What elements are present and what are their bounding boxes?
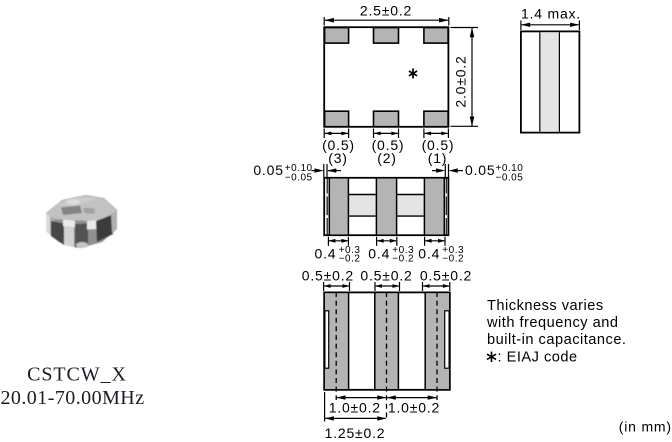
svg-text:20.01-70.00MHz: 20.01-70.00MHz — [0, 387, 144, 409]
svg-text:(in mm): (in mm) — [619, 419, 672, 435]
svg-text:0.05: 0.05 — [465, 162, 495, 178]
svg-text:with frequency and: with frequency and — [486, 315, 619, 331]
svg-text:1.25±0.2: 1.25±0.2 — [325, 425, 386, 441]
svg-text:−0.05: −0.05 — [285, 172, 313, 183]
svg-text:(3): (3) — [328, 150, 348, 166]
svg-text:0.5±0.2: 0.5±0.2 — [302, 267, 354, 283]
svg-text:0.4: 0.4 — [368, 245, 390, 261]
svg-text:(2): (2) — [377, 150, 397, 166]
svg-text:2.5±0.2: 2.5±0.2 — [360, 3, 412, 19]
svg-text:Thickness varies: Thickness varies — [487, 298, 604, 314]
svg-text:0.4: 0.4 — [315, 245, 337, 261]
svg-text:1.0±0.2: 1.0±0.2 — [329, 400, 381, 416]
svg-text:(1): (1) — [428, 150, 448, 166]
svg-text:−0.2: −0.2 — [392, 254, 414, 265]
svg-text:−0.2: −0.2 — [442, 254, 464, 265]
svg-text:: EIAJ code: : EIAJ code — [498, 349, 578, 365]
svg-text:built-in capacitance.: built-in capacitance. — [487, 332, 627, 348]
svg-text:0.5±0.2: 0.5±0.2 — [360, 267, 412, 283]
svg-text:0.05: 0.05 — [253, 162, 283, 178]
svg-text:1.0±0.2: 1.0±0.2 — [388, 400, 440, 416]
svg-text:0.4: 0.4 — [418, 245, 440, 261]
svg-text:−0.05: −0.05 — [496, 172, 524, 183]
svg-text:1.4 max.: 1.4 max. — [521, 5, 581, 21]
svg-text:2.0±0.2: 2.0±0.2 — [453, 55, 469, 107]
svg-text:−0.2: −0.2 — [339, 254, 361, 265]
svg-text:0.5±0.2: 0.5±0.2 — [420, 267, 472, 283]
svg-text:CSTCW_X: CSTCW_X — [27, 364, 127, 386]
